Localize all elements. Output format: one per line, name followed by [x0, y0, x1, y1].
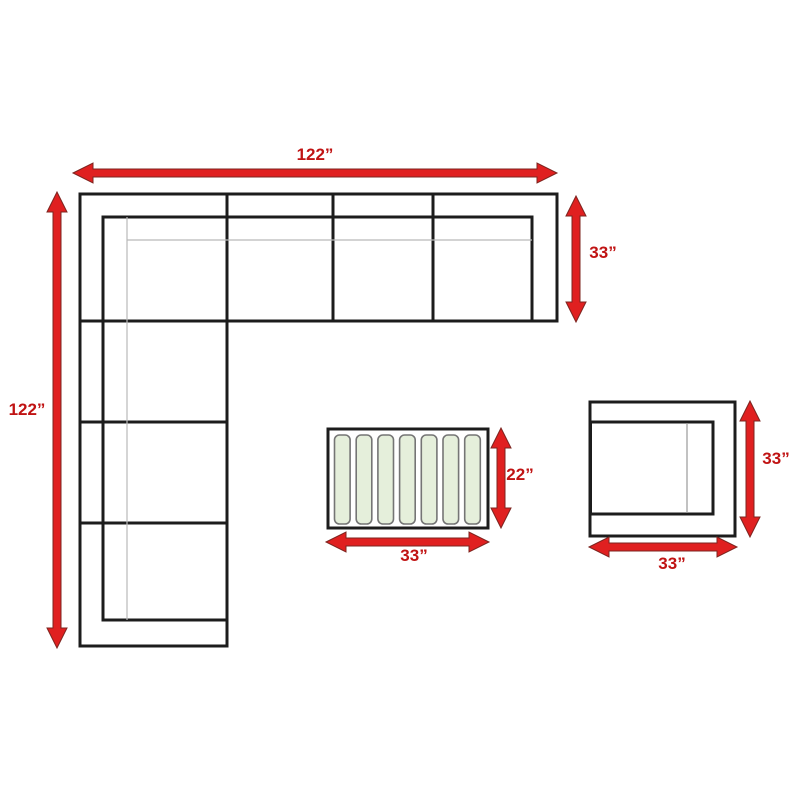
- sofa-width-label: 122”: [297, 146, 334, 163]
- sectional-sofa-drawing: [80, 194, 557, 646]
- table-width-label: 33”: [400, 547, 427, 564]
- sofa-height-label: 122”: [9, 401, 46, 418]
- table-slat: [400, 435, 416, 524]
- table-slat: [356, 435, 372, 524]
- table-slat: [421, 435, 437, 524]
- diagram-canvas: [0, 0, 800, 800]
- sofa-height-arrow: [47, 192, 67, 648]
- sofa-depth-label: 33”: [589, 244, 616, 261]
- table-depth-label: 22”: [506, 466, 533, 483]
- chair-depth-label: 33”: [762, 450, 789, 467]
- sofa-depth-arrow: [566, 196, 586, 322]
- table-slat: [443, 435, 459, 524]
- furniture-dimension-diagram: 122” 122” 33” 22” 33” 33” 33”: [0, 0, 800, 800]
- sofa-outer-outline: [80, 194, 557, 646]
- table-slat: [378, 435, 394, 524]
- coffee-table-drawing: [328, 429, 488, 528]
- sofa-width-arrow: [73, 163, 557, 183]
- table-slat: [335, 435, 351, 524]
- corner-chair-drawing: [590, 402, 735, 536]
- table-slats: [335, 435, 481, 524]
- chair-depth-arrow: [740, 401, 760, 537]
- chair-width-label: 33”: [658, 555, 685, 572]
- table-slat: [465, 435, 481, 524]
